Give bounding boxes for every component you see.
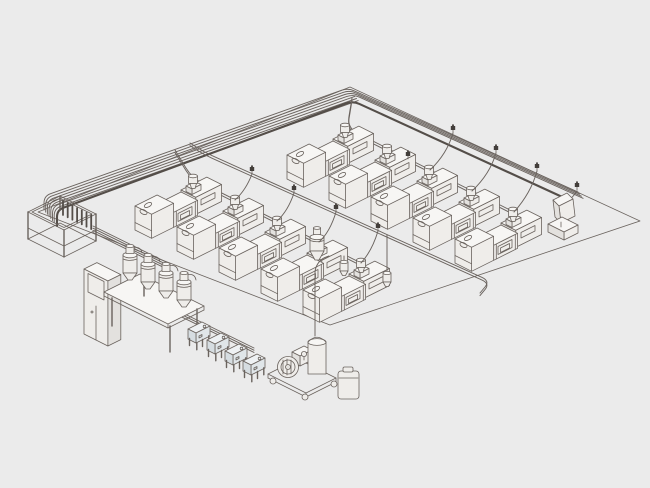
right-side-station bbox=[548, 193, 578, 240]
diagram-canvas bbox=[0, 0, 650, 488]
material-bin bbox=[338, 367, 359, 399]
factory-conveying-system-diagram bbox=[0, 0, 650, 488]
control-cabinet bbox=[84, 263, 121, 346]
manifold-distribution-station bbox=[28, 196, 96, 257]
vacuum-pump-station bbox=[268, 337, 337, 400]
